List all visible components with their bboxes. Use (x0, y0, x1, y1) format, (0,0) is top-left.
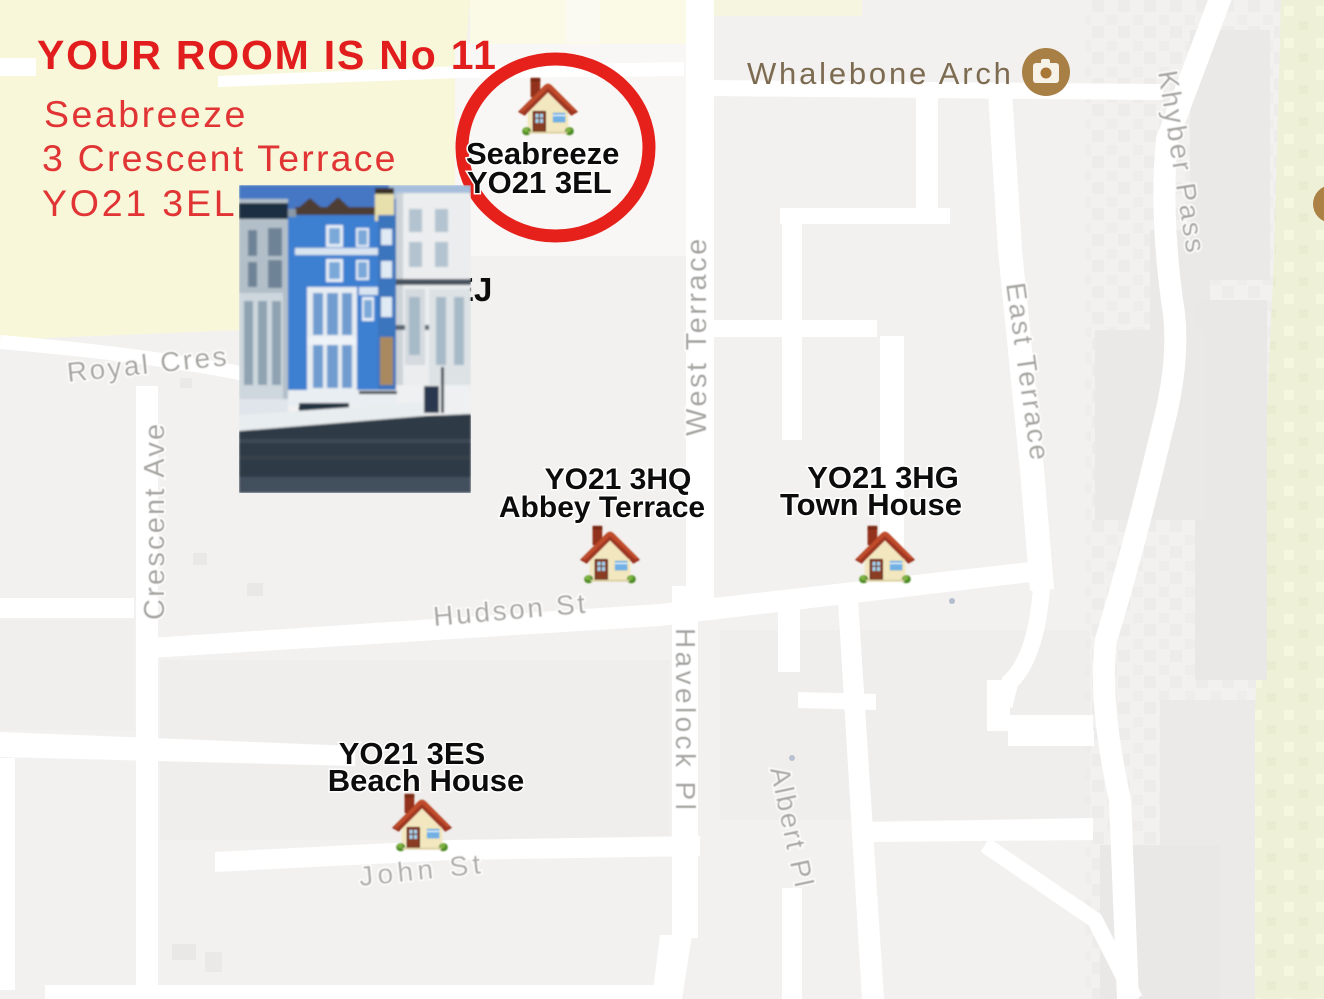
svg-text:Abbey Terrace: Abbey Terrace (499, 491, 705, 524)
svg-text:Seabreeze: Seabreeze (44, 93, 248, 135)
svg-text:West Terrace: West Terrace (681, 236, 713, 436)
svg-text:Crescent Ave: Crescent Ave (139, 422, 171, 620)
svg-text:3 Crescent Terrace: 3 Crescent Terrace (42, 137, 398, 179)
svg-text:YO21 3EL: YO21 3EL (467, 165, 612, 200)
svg-text:Town House: Town House (780, 487, 962, 522)
svg-text:YO21 3EL: YO21 3EL (42, 182, 237, 224)
svg-text:Whalebone Arch: Whalebone Arch (747, 56, 1014, 91)
svg-text:YOUR ROOM IS No 11: YOUR ROOM IS No 11 (37, 32, 498, 78)
svg-text:Havelock Pl: Havelock Pl (670, 628, 701, 813)
svg-text:Beach House: Beach House (328, 763, 524, 798)
